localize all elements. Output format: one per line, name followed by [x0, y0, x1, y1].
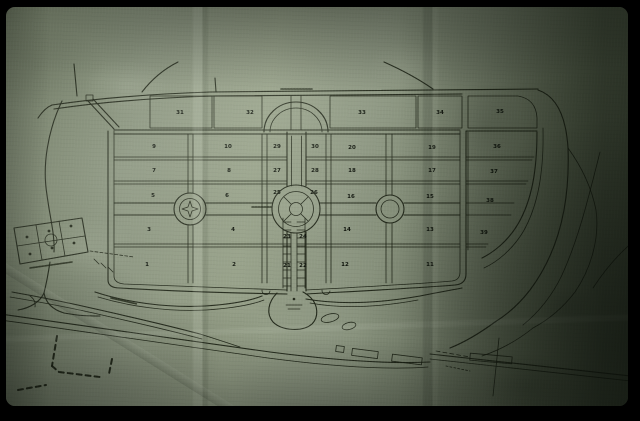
- photo-vignette: [6, 7, 628, 406]
- map-paper: 31 32 33 34 35 9 10 29 30 20 19 36 7 8 2…: [6, 7, 628, 406]
- photo-frame: 31 32 33 34 35 9 10 29 30 20 19 36 7 8 2…: [0, 0, 640, 421]
